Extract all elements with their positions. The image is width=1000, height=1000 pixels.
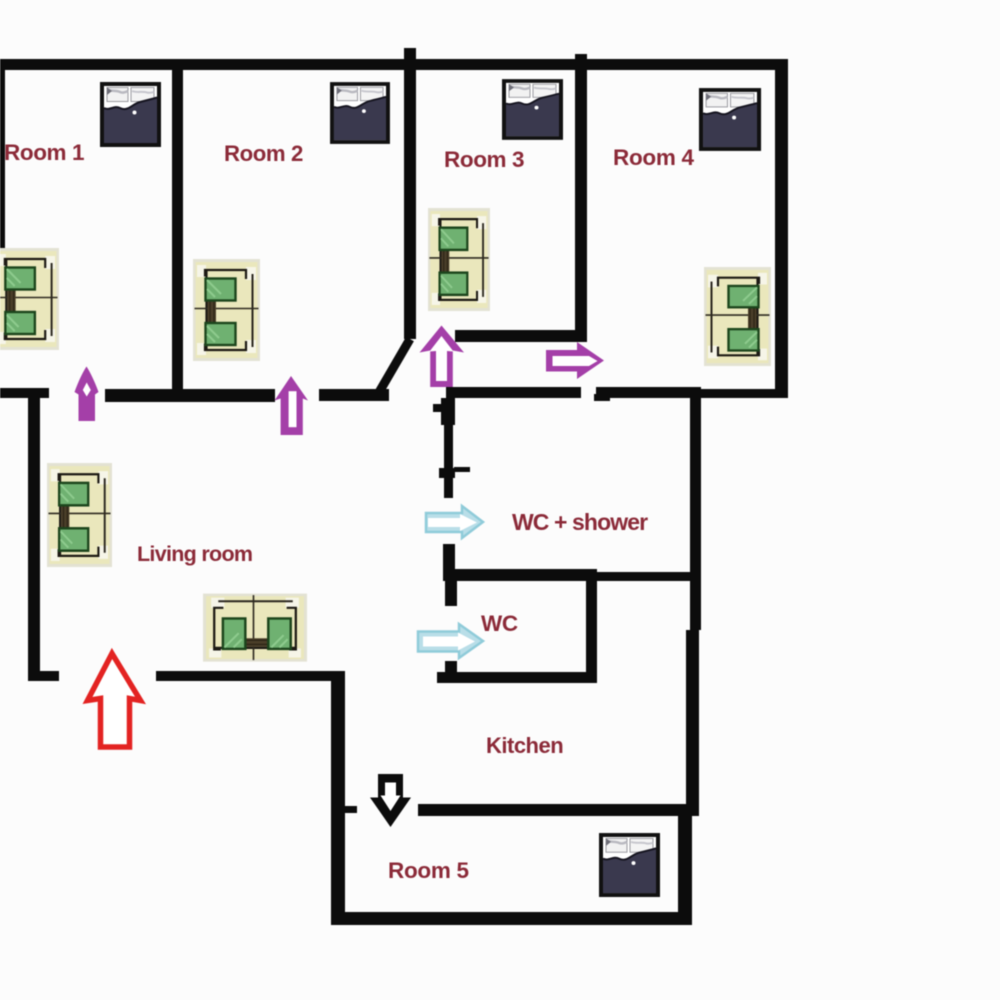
svg-text:Room 3: Room 3 [444,147,524,172]
svg-text:Living room: Living room [137,542,252,566]
svg-text:Kitchen: Kitchen [486,733,563,758]
svg-text:Room 4: Room 4 [613,145,694,170]
svg-text:Room 5: Room 5 [388,858,469,883]
svg-text:WC + shower: WC + shower [512,509,648,535]
svg-text:WC: WC [481,611,518,636]
svg-text:Room 2: Room 2 [224,141,303,166]
svg-text:Room 1: Room 1 [4,140,84,165]
